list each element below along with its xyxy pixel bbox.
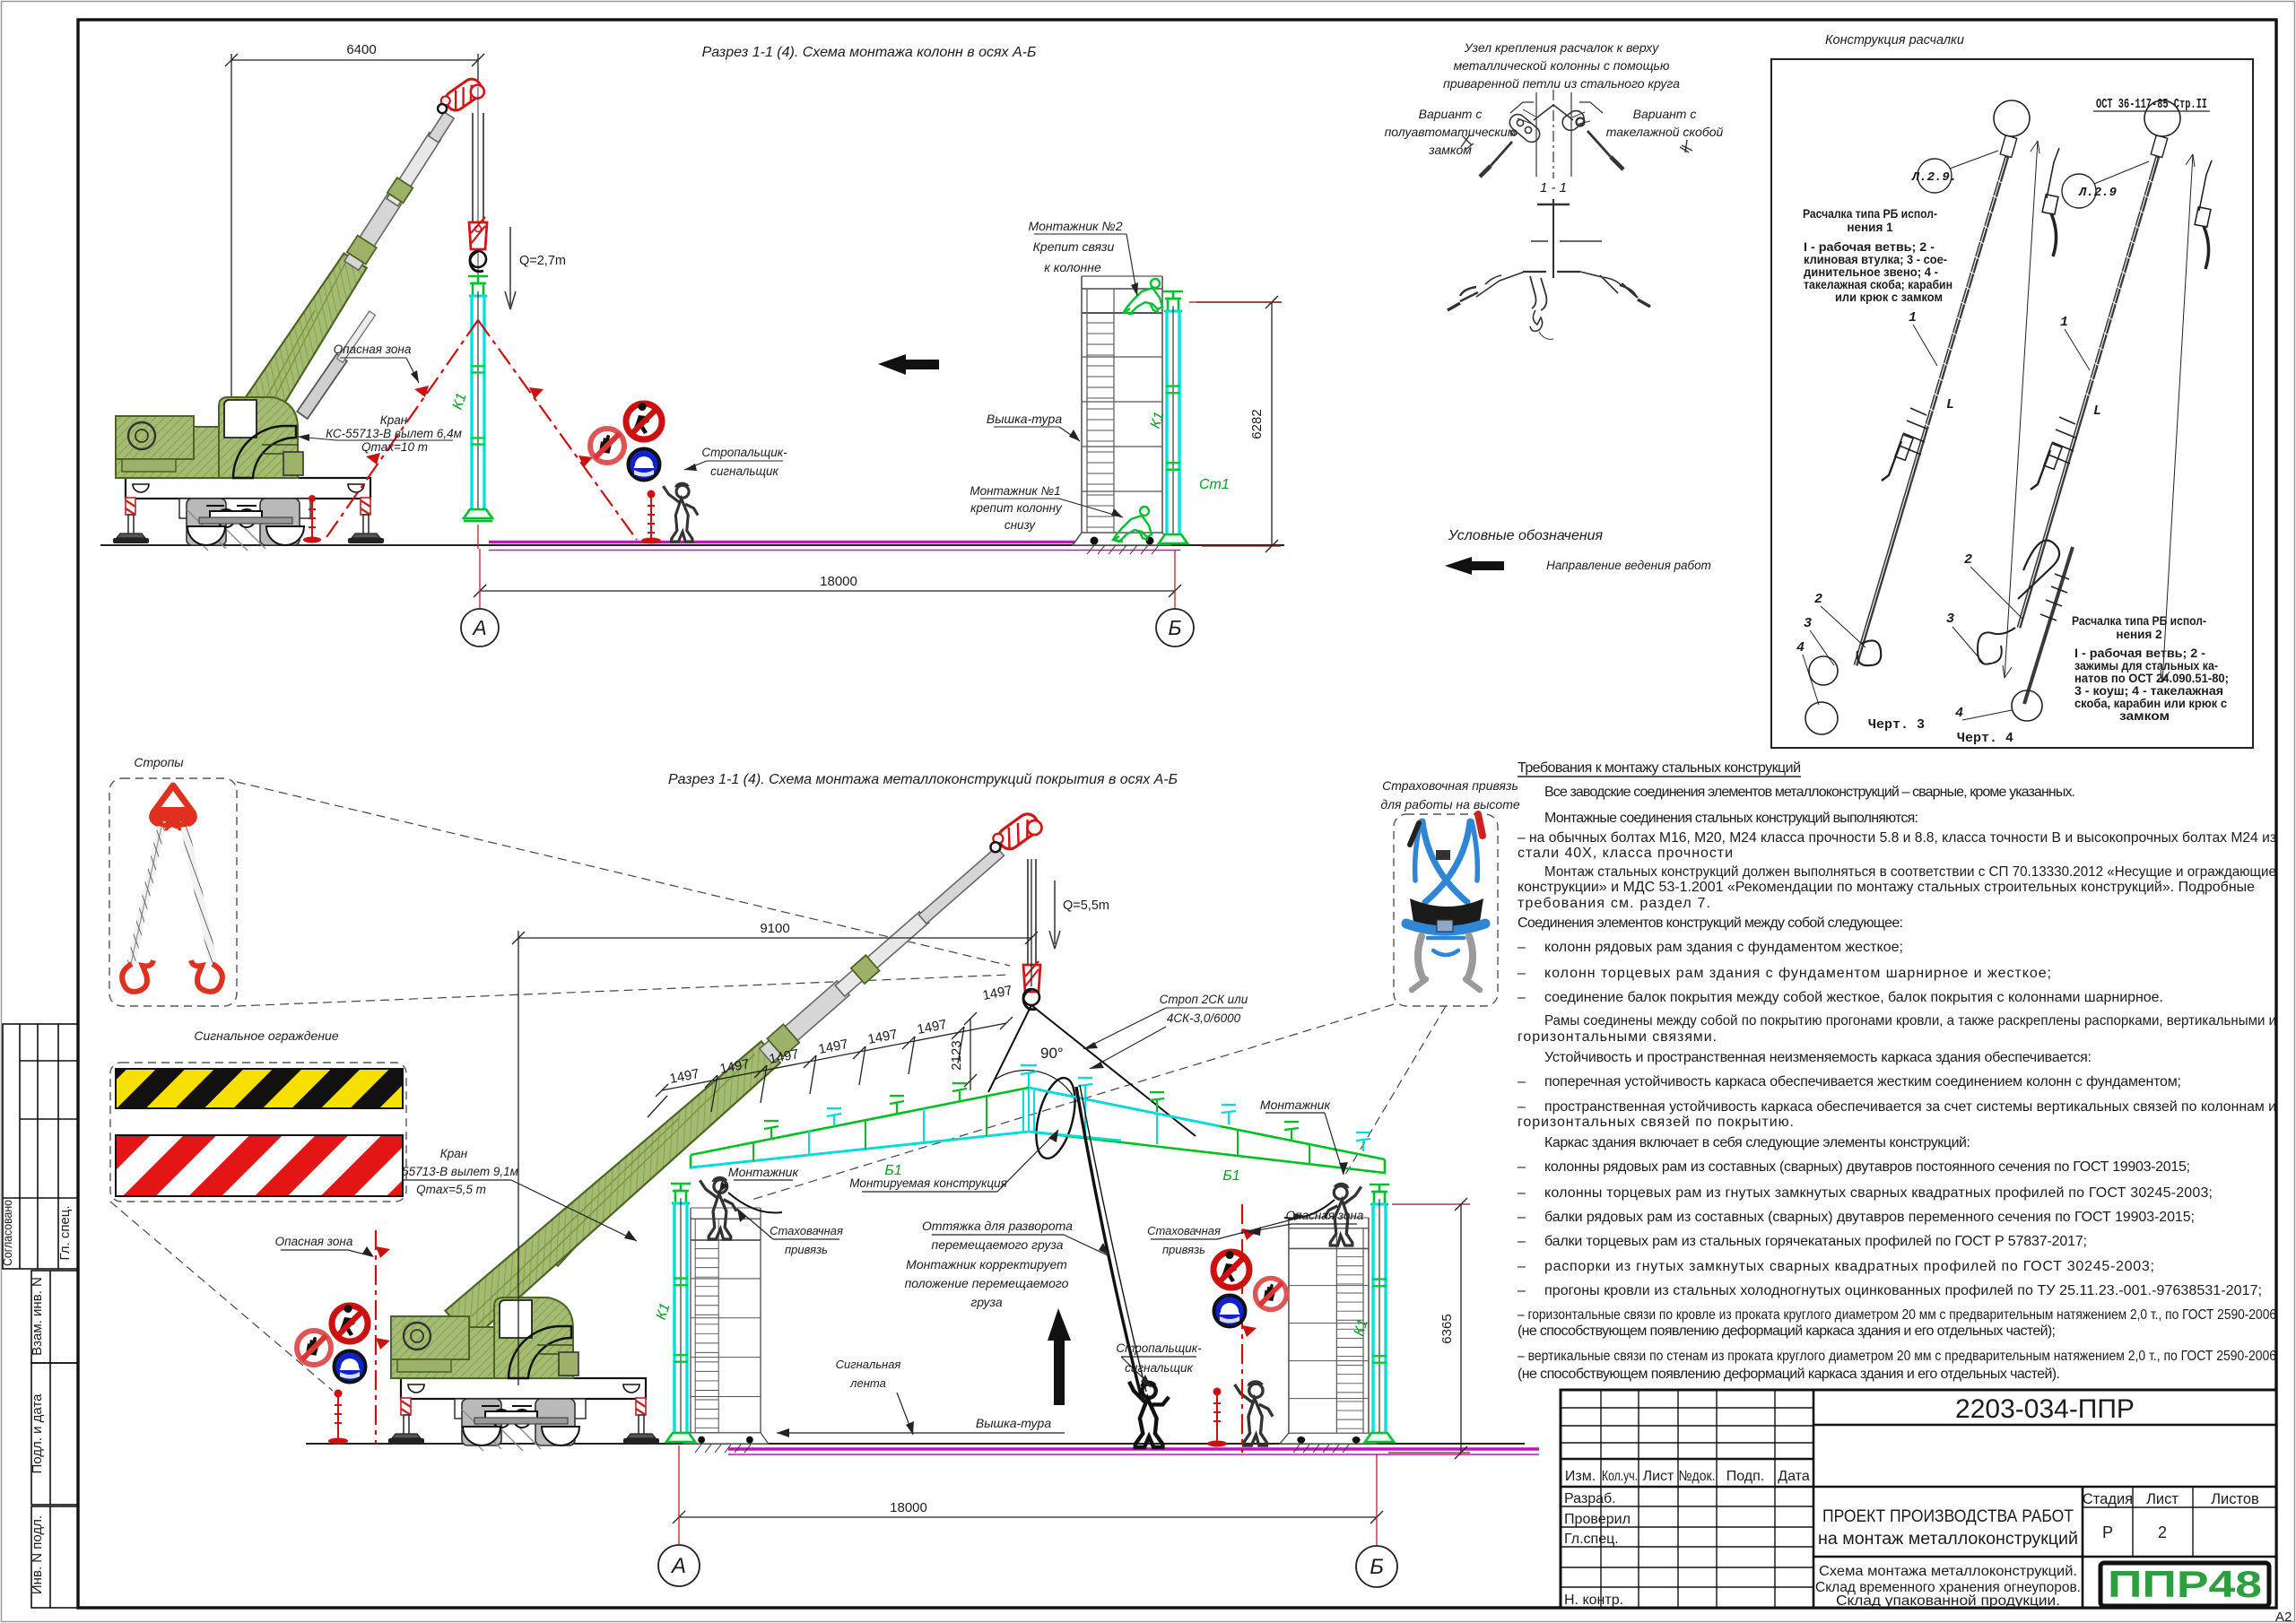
svg-text:Проверил: Проверил: [1564, 1512, 1631, 1527]
svg-text:Черт. 4: Черт. 4: [1957, 731, 2013, 746]
svg-text:такелажной скобой: такелажной скобой: [1606, 125, 1724, 139]
svg-text:снизу: снизу: [1004, 518, 1037, 532]
svg-text:А2: А2: [2275, 1610, 2292, 1623]
svg-text:КС-55713-В вылет 6,4м: КС-55713-В вылет 6,4м: [326, 427, 462, 440]
svg-text:крепит колонну: крепит колонну: [970, 501, 1063, 515]
svg-text:Б: Б: [1370, 1555, 1384, 1579]
svg-text:Р: Р: [2102, 1523, 2113, 1541]
svg-text:6365: 6365: [1439, 1314, 1455, 1343]
svg-text:4: 4: [1955, 706, 1963, 721]
svg-text:Qmax=10 т: Qmax=10 т: [361, 440, 428, 454]
svg-text:приваренной петли из стального: приваренной петли из стального круга: [1443, 76, 1680, 91]
svg-text:Кран: Кран: [440, 1147, 468, 1160]
svg-text:Опасная зона: Опасная зона: [334, 343, 412, 356]
svg-text:колонны рядовых рам из составн: колонны рядовых рам из составных (сварны…: [1544, 1159, 2190, 1175]
svg-text:Монтажник корректирует: Монтажник корректирует: [906, 1257, 1067, 1271]
svg-text:–: –: [1518, 1159, 1526, 1175]
svg-text:нения 2: нения 2: [2116, 628, 2161, 641]
svg-text:или крюк с замком: или крюк с замком: [1835, 291, 1943, 304]
svg-text:Листов: Листов: [2211, 1491, 2259, 1507]
svg-text:клиновая втулка; 3 - сое-: клиновая втулка; 3 - сое-: [1804, 253, 1947, 266]
svg-text:–: –: [1518, 1099, 1526, 1115]
svg-text:Стропы: Стропы: [134, 755, 184, 769]
svg-text:–: –: [1518, 1074, 1526, 1089]
svg-text:Соединения элементов конструкц: Соединения элементов конструкций между с…: [1518, 916, 1903, 931]
svg-text:натов по ОСТ 24.090.51-80;: натов по ОСТ 24.090.51-80;: [2074, 672, 2229, 685]
svg-text:–: –: [1518, 1259, 1526, 1274]
svg-text:6282: 6282: [1249, 409, 1265, 438]
svg-text:привязь: привязь: [1162, 1243, 1205, 1256]
svg-text:Расчалка типа РБ испол-: Расчалка типа РБ испол-: [2072, 614, 2206, 628]
svg-text:поперечная устойчивость каркас: поперечная устойчивость каркаса обеспечи…: [1544, 1074, 2181, 1089]
svg-text:Каркас здания включает в себя: Каркас здания включает в себя следующие …: [1544, 1135, 1970, 1150]
svg-text:металлической колонны с помощь: металлической колонны с помощью: [1454, 58, 1670, 73]
svg-text:груза: груза: [970, 1295, 1003, 1309]
svg-text:Условные обозначения: Условные обозначения: [1448, 528, 1604, 543]
svg-text:А: А: [471, 616, 486, 639]
svg-text:Б1: Б1: [1222, 1168, 1239, 1184]
svg-text:3: 3: [1804, 616, 1812, 631]
svg-text:Ст1: Ст1: [1199, 477, 1230, 492]
svg-text:– вертикальные связи по стенам: – вертикальные связи по стенам из прокат…: [1518, 1349, 2276, 1364]
svg-text:для работы на высоте: для работы на высоте: [1380, 797, 1520, 811]
svg-text:Сигнальная: Сигнальная: [836, 1358, 901, 1371]
svg-text:–: –: [1518, 940, 1526, 955]
svg-text:L: L: [2093, 404, 2101, 419]
svg-text:конструкции» и МДС 53-1.2001 «: конструкции» и МДС 53-1.2001 «Рекомендац…: [1518, 880, 2255, 895]
svg-text:перемещаемого груза: перемещаемого груза: [932, 1237, 1064, 1252]
svg-text:Строп 2СК или: Строп 2СК или: [1160, 993, 1248, 1006]
svg-text:такелажная скоба; карабин: такелажная скоба; карабин: [1804, 278, 1952, 291]
svg-text:Стаховачная: Стаховачная: [770, 1224, 843, 1237]
svg-text:Дата: Дата: [1778, 1469, 1810, 1484]
svg-text:сигнальщик: сигнальщик: [710, 464, 778, 478]
svg-text:распорки из гнутых замкнутых с: распорки из гнутых замкнутых сварных ква…: [1544, 1259, 2154, 1274]
svg-text:№док.: №док.: [1679, 1469, 1716, 1484]
svg-text:колонн рядовых рам здания с фу: колонн рядовых рам здания с фундаментом …: [1544, 940, 1903, 955]
svg-text:1 - 1: 1 - 1: [1540, 180, 1567, 195]
svg-text:Q=5,5m: Q=5,5m: [1063, 898, 1109, 913]
svg-text:ПРОЕКТ ПРОИЗВОДСТВА РАБОТ: ПРОЕКТ ПРОИЗВОДСТВА РАБОТ: [1822, 1507, 2074, 1526]
svg-text:–: –: [1518, 1210, 1526, 1225]
svg-text:Узел крепления расчалок к верх: Узел крепления расчалок к верху: [1464, 40, 1659, 55]
svg-text:Согласовано: Согласовано: [1, 1200, 14, 1266]
svg-text:Требования к монтажу стальных: Требования к монтажу стальных конструкци…: [1518, 760, 1801, 776]
svg-text:Расчалка типа РБ испол-: Расчалка типа РБ испол-: [1803, 207, 1937, 221]
svg-text:ППР48: ППР48: [2108, 1563, 2262, 1605]
svg-text:Инв. N подл.: Инв. N подл.: [30, 1515, 45, 1594]
svg-text:замком: замком: [1428, 143, 1472, 157]
svg-text:Л.2.9: Л.2.9: [2078, 186, 2117, 200]
svg-text:– горизонтальные связи по кро: – горизонтальные связи по кровле из прок…: [1518, 1307, 2276, 1323]
svg-text:18000: 18000: [890, 1500, 927, 1515]
svg-text:Изм.: Изм.: [1565, 1469, 1596, 1484]
svg-text:горизонтальными связями.: горизонтальными связями.: [1518, 1029, 1717, 1045]
svg-text:Гл. спец.: Гл. спец.: [57, 1205, 73, 1260]
svg-text:к колонне: к колонне: [1044, 260, 1101, 274]
svg-text:Разрез 1-1 (4). Схема монтажа: Разрез 1-1 (4). Схема монтажа колонн в о…: [702, 45, 1037, 60]
svg-text:Взам. инв. N: Взам. инв. N: [30, 1277, 45, 1356]
svg-text:Направление ведения работ: Направление ведения работ: [1546, 559, 1711, 572]
svg-text:Вариант с: Вариант с: [1419, 107, 1483, 121]
svg-text:–: –: [1518, 1234, 1526, 1249]
svg-text:2: 2: [2158, 1523, 2167, 1541]
svg-text:Схема монтажа металлоконструкц: Схема монтажа металлоконструкций.: [1819, 1564, 2077, 1579]
svg-text:нения 1: нения 1: [1847, 221, 1893, 234]
svg-text:Крепит связи: Крепит связи: [1033, 239, 1115, 254]
svg-text:6400: 6400: [346, 42, 376, 57]
svg-text:–: –: [1518, 990, 1526, 1005]
svg-text:1: 1: [2060, 315, 2068, 330]
svg-text:Стропальщик-: Стропальщик-: [1116, 1341, 1202, 1355]
svg-text:Стадия: Стадия: [2083, 1491, 2133, 1507]
svg-text:балки рядовых рам из составных: балки рядовых рам из составных (сварных)…: [1544, 1210, 2195, 1225]
svg-text:Разраб.: Разраб.: [1564, 1491, 1616, 1506]
svg-text:Стаховачная: Стаховачная: [1147, 1224, 1221, 1237]
svg-text:– на обычных болтах М16, М20,: – на обычных болтах М16, М20, М24 класса…: [1518, 830, 2276, 846]
svg-text:Рамы соединены между собой по: Рамы соединены между собой по покрытию п…: [1544, 1013, 2276, 1028]
svg-text:Вышка-тура: Вышка-тура: [987, 412, 1062, 426]
svg-text:Стропальщик-: Стропальщик-: [701, 446, 787, 459]
svg-text:требования см. раздел 7.: требования см. раздел 7.: [1518, 896, 1710, 911]
svg-text:динительное звено; 4 -: динительное звено; 4 -: [1804, 265, 1938, 279]
svg-text:4: 4: [1796, 640, 1805, 655]
svg-text:2: 2: [1814, 592, 1822, 607]
svg-text:2123: 2123: [949, 1040, 964, 1070]
svg-text:скоба, карабин или крюк с: скоба, карабин или крюк с: [2074, 697, 2227, 710]
svg-text:Сигнальное ограждение: Сигнальное ограждение: [194, 1028, 338, 1043]
svg-text:колонн торцевых рам здания с ф: колонн торцевых рам здания с фундаментом…: [1544, 966, 2051, 981]
svg-text:горизонтальных связей по покры: горизонтальных связей по покрытию.: [1518, 1115, 1794, 1130]
svg-text:стали 40Х, класса прочности: стали 40Х, класса прочности: [1518, 846, 1733, 861]
svg-text:18000: 18000: [820, 574, 857, 589]
svg-text:Монтажник: Монтажник: [728, 1165, 800, 1179]
svg-text:2: 2: [1964, 552, 1972, 568]
svg-text:Монтажник: Монтажник: [1260, 1098, 1332, 1112]
svg-text:Монтируемая конструкция: Монтируемая конструкция: [849, 1176, 1007, 1190]
svg-text:прогоны кровли из стальных хол: прогоны кровли из стальных холодногнутых…: [1544, 1283, 2262, 1298]
svg-text:балки торцевых рам из стальных: балки торцевых рам из стальных горячекат…: [1544, 1234, 2087, 1249]
svg-text:Q=2,7m: Q=2,7m: [519, 254, 566, 268]
svg-text:(не способствующем появлению д: (не способствующем появлению деформаций …: [1518, 1367, 2060, 1382]
svg-text:Монтажные соединения стальных: Монтажные соединения стальных конструкци…: [1544, 811, 1918, 826]
svg-text:Л.2.9.: Л.2.9.: [1911, 170, 1957, 185]
svg-text:на монтаж металлоконструкций: на монтаж металлоконструкций: [1818, 1530, 2078, 1549]
svg-text:Черт. 3: Черт. 3: [1868, 717, 1925, 733]
svg-text:колонны торцевых рам из гнутых: колонны торцевых рам из гнутых замкнутых…: [1544, 1185, 2213, 1201]
svg-text:Подп.: Подп.: [1726, 1469, 1765, 1484]
svg-text:сигнальщик: сигнальщик: [1125, 1361, 1193, 1375]
svg-text:Оттяжка для разворота: Оттяжка для разворота: [922, 1219, 1073, 1233]
svg-text:пространственная устойчивость: пространственная устойчивость каркаса об…: [1544, 1099, 2276, 1115]
svg-text:L: L: [1946, 397, 1954, 412]
svg-text:Устойчивость и пространственна: Устойчивость и пространственная неизменя…: [1544, 1050, 2092, 1065]
svg-text:I - рабочая ветвь; 2 -: I - рабочая ветвь; 2 -: [2074, 647, 2205, 660]
svg-text:Монтажник №2: Монтажник №2: [1028, 219, 1122, 233]
svg-text:Б: Б: [1169, 616, 1182, 639]
svg-text:2203-034-ППР: 2203-034-ППР: [1955, 1394, 2135, 1424]
svg-text:Лист: Лист: [1643, 1469, 1674, 1484]
svg-text:1: 1: [1909, 310, 1917, 325]
svg-text:Qmax=5,5 т: Qmax=5,5 т: [416, 1183, 486, 1196]
svg-text:(не способствующем появлению д: (не способствующем появлению деформаций …: [1518, 1324, 2056, 1339]
svg-text:А: А: [670, 1554, 686, 1578]
svg-text:–: –: [1518, 1185, 1526, 1201]
svg-text:Кран: Кран: [380, 413, 408, 427]
svg-text:лента: лента: [849, 1376, 886, 1390]
svg-text:I - рабочая ветвь; 2 -: I - рабочая ветвь; 2 -: [1804, 240, 1935, 254]
svg-text:Монтаж стальных конструкций до: Монтаж стальных конструкций должен выпол…: [1544, 864, 2276, 880]
svg-text:Склад упакованной продукции.: Склад упакованной продукции.: [1836, 1593, 2060, 1609]
svg-text:9100: 9100: [760, 921, 789, 936]
svg-text:положение перемещаемого: положение перемещаемого: [905, 1276, 1069, 1290]
svg-text:зажимы для стальных ка-: зажимы для стальных ка-: [2074, 659, 2218, 673]
svg-text:3: 3: [1946, 612, 1954, 627]
svg-text:Вышка-тура: Вышка-тура: [976, 1416, 1051, 1430]
svg-text:Вариант с: Вариант с: [1633, 107, 1697, 121]
svg-text:Монтажник №1: Монтажник №1: [970, 484, 1060, 498]
svg-text:замком: замком: [2119, 709, 2170, 723]
svg-text:Кол.уч.: Кол.уч.: [1602, 1469, 1638, 1484]
svg-text:Разрез 1-1 (4). Схема монтажа: Разрез 1-1 (4). Схема монтажа металлокон…: [668, 772, 1178, 787]
svg-text:Все заводские соединения элеме: Все заводские соединения элементов метал…: [1544, 785, 2075, 800]
svg-text:3 - коуш; 4 - такелажная: 3 - коуш; 4 - такелажная: [2074, 684, 2223, 698]
svg-text:Н. контр.: Н. контр.: [1564, 1593, 1623, 1608]
svg-text:Подл. и дата: Подл. и дата: [30, 1393, 45, 1474]
svg-text:–: –: [1518, 966, 1526, 981]
svg-text:полуавтоматическим: полуавтоматическим: [1385, 125, 1517, 139]
svg-text:90°: 90°: [1040, 1045, 1064, 1062]
svg-text:Опасная зона: Опасная зона: [275, 1235, 353, 1248]
svg-text:привязь: привязь: [785, 1243, 828, 1256]
svg-text:соединение балок покрытия межд: соединение балок покрытия между собой же…: [1544, 990, 2163, 1005]
svg-text:4СК-3,0/6000: 4СК-3,0/6000: [1167, 1011, 1241, 1025]
svg-text:–: –: [1518, 1283, 1526, 1298]
svg-text:Гл.спец.: Гл.спец.: [1564, 1532, 1619, 1547]
svg-text:Конструкция расчалки: Конструкция расчалки: [1825, 33, 1964, 48]
svg-text:Лист: Лист: [2146, 1491, 2179, 1507]
svg-text:Страховочная привязь: Страховочная привязь: [1382, 778, 1518, 793]
